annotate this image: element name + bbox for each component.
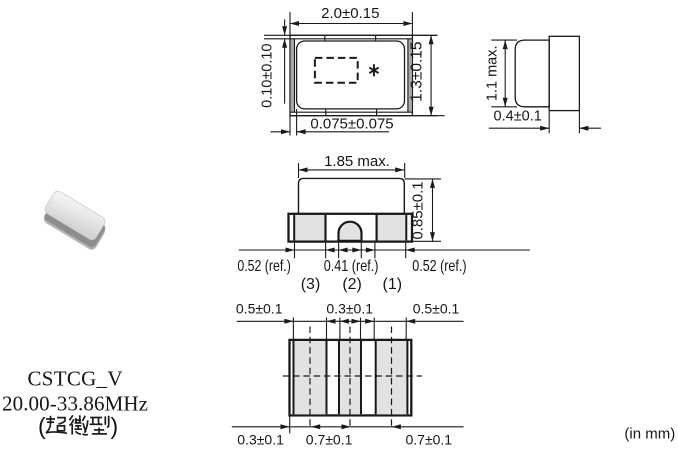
svg-text:(: ( (38, 413, 46, 439)
svg-text:0.7±0.1: 0.7±0.1 (306, 432, 353, 448)
svg-text:0.41 (ref.): 0.41 (ref.) (324, 258, 379, 275)
svg-text:0.52 (ref.): 0.52 (ref.) (237, 258, 291, 275)
svg-text:): ) (111, 413, 119, 439)
svg-text:0.4±0.1: 0.4±0.1 (494, 109, 542, 125)
svg-text:CSTCG_V: CSTCG_V (28, 367, 123, 391)
svg-text:0.52 (ref.): 0.52 (ref.) (412, 258, 466, 275)
svg-text:1.1 max.: 1.1 max. (485, 45, 501, 101)
svg-text:1.3±0.15: 1.3±0.15 (409, 41, 426, 101)
svg-text:20.00-33.86MHz: 20.00-33.86MHz (2, 392, 148, 416)
svg-text:(1): (1) (383, 276, 403, 293)
svg-text:0.5±0.1: 0.5±0.1 (236, 301, 283, 317)
svg-text:0.10±0.10: 0.10±0.10 (260, 43, 276, 107)
svg-text:0.3±0.1: 0.3±0.1 (237, 432, 284, 448)
svg-text:0.075±0.075: 0.075±0.075 (310, 115, 393, 132)
svg-text:(2): (2) (342, 276, 362, 293)
svg-text:1.85 max.: 1.85 max. (324, 153, 390, 170)
svg-text:0.3±0.1: 0.3±0.1 (326, 301, 373, 317)
svg-text:0.85±0.1: 0.85±0.1 (410, 181, 427, 239)
svg-text:(3): (3) (301, 276, 321, 293)
svg-text:2.0±0.15: 2.0±0.15 (321, 5, 379, 22)
svg-text:0.7±0.1: 0.7±0.1 (405, 432, 452, 448)
svg-text:0.5±0.1: 0.5±0.1 (413, 301, 460, 317)
svg-text:(in mm): (in mm) (624, 426, 675, 443)
